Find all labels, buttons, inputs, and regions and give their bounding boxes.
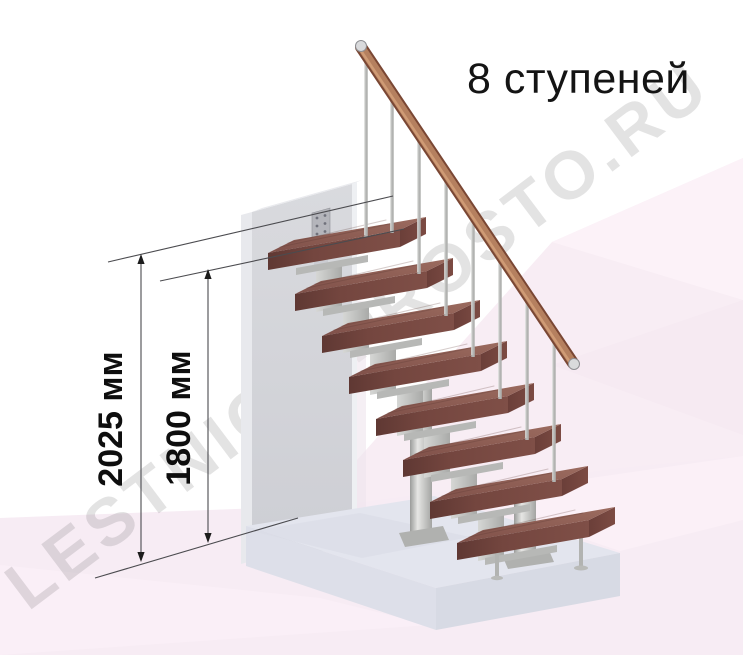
steps-count-title: 8 ступеней <box>467 55 690 103</box>
staircase-illustration: LESTNICA-PROSTO.RU <box>0 0 743 655</box>
handrail-top-cap <box>356 41 367 52</box>
dimension-label-1800: 1800 мм <box>160 350 198 485</box>
handrail-end-cap <box>569 359 580 370</box>
staircase-diagram: LESTNICA-PROSTO.RU <box>0 0 743 655</box>
dimension-label-2025: 2025 мм <box>92 351 130 486</box>
